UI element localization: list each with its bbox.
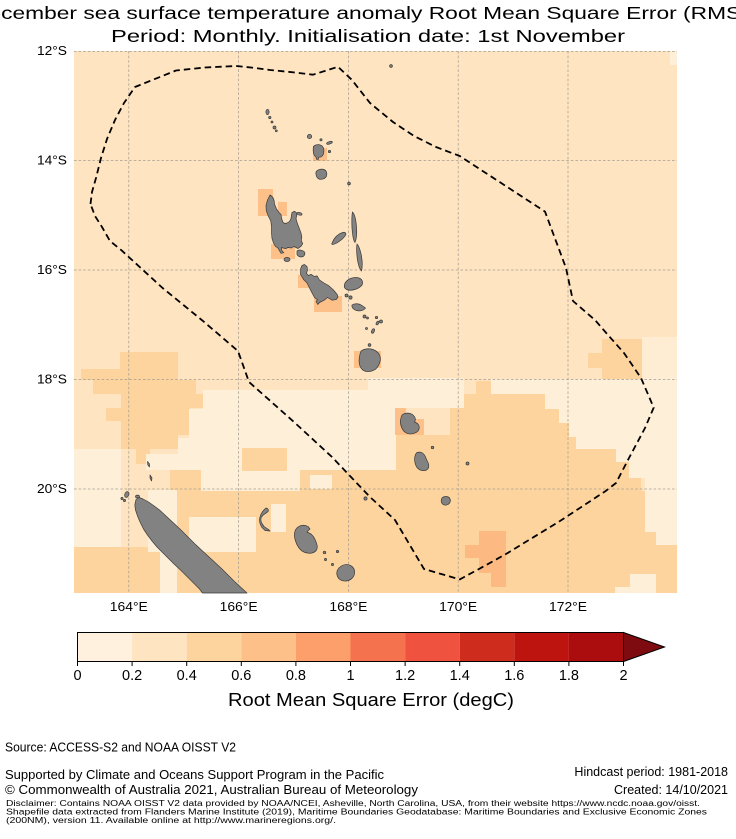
svg-text:0.4: 0.4	[177, 668, 197, 684]
svg-text:20°S: 20°S	[37, 481, 67, 496]
svg-text:166°E: 166°E	[220, 599, 258, 614]
svg-text:Source: ACCESS-S2 and NOAA OIS: Source: ACCESS-S2 and NOAA OISST V2	[5, 741, 236, 755]
svg-text:2: 2	[619, 668, 627, 684]
svg-text:December sea surface temperatu: December sea surface temperature anomaly…	[0, 3, 736, 23]
svg-text:18°S: 18°S	[37, 372, 67, 387]
svg-text:1.6: 1.6	[504, 668, 524, 684]
svg-text:Root Mean Square Error (degC): Root Mean Square Error (degC)	[228, 690, 514, 710]
svg-text:Period: Monthly. Initialisatio: Period: Monthly. Initialisation date: 1s…	[111, 26, 625, 46]
svg-text:Hindcast period: 1981-2018: Hindcast period: 1981-2018	[574, 765, 728, 779]
svg-text:0.2: 0.2	[122, 668, 142, 684]
svg-text:Created: 14/10/2021: Created: 14/10/2021	[614, 783, 728, 797]
svg-text:0: 0	[73, 668, 81, 684]
svg-text:Supported by Climate and Ocean: Supported by Climate and Oceans Support …	[5, 768, 384, 782]
svg-text:1.4: 1.4	[450, 668, 470, 684]
svg-text:© Commonwealth of Australia 20: © Commonwealth of Australia 2021, Austra…	[5, 783, 419, 797]
svg-text:(200NM), version 11. Available: (200NM), version 11. Available online at…	[6, 816, 336, 825]
svg-text:12°S: 12°S	[37, 43, 67, 58]
svg-text:172°E: 172°E	[549, 599, 587, 614]
svg-text:0.6: 0.6	[231, 668, 251, 684]
svg-text:16°S: 16°S	[37, 262, 67, 277]
svg-text:164°E: 164°E	[110, 599, 148, 614]
svg-text:0.8: 0.8	[286, 668, 306, 684]
svg-text:1: 1	[346, 668, 354, 684]
svg-text:1.8: 1.8	[559, 668, 579, 684]
svg-text:1.2: 1.2	[395, 668, 415, 684]
svg-text:168°E: 168°E	[329, 599, 367, 614]
svg-text:14°S: 14°S	[37, 153, 67, 168]
svg-text:170°E: 170°E	[439, 599, 477, 614]
